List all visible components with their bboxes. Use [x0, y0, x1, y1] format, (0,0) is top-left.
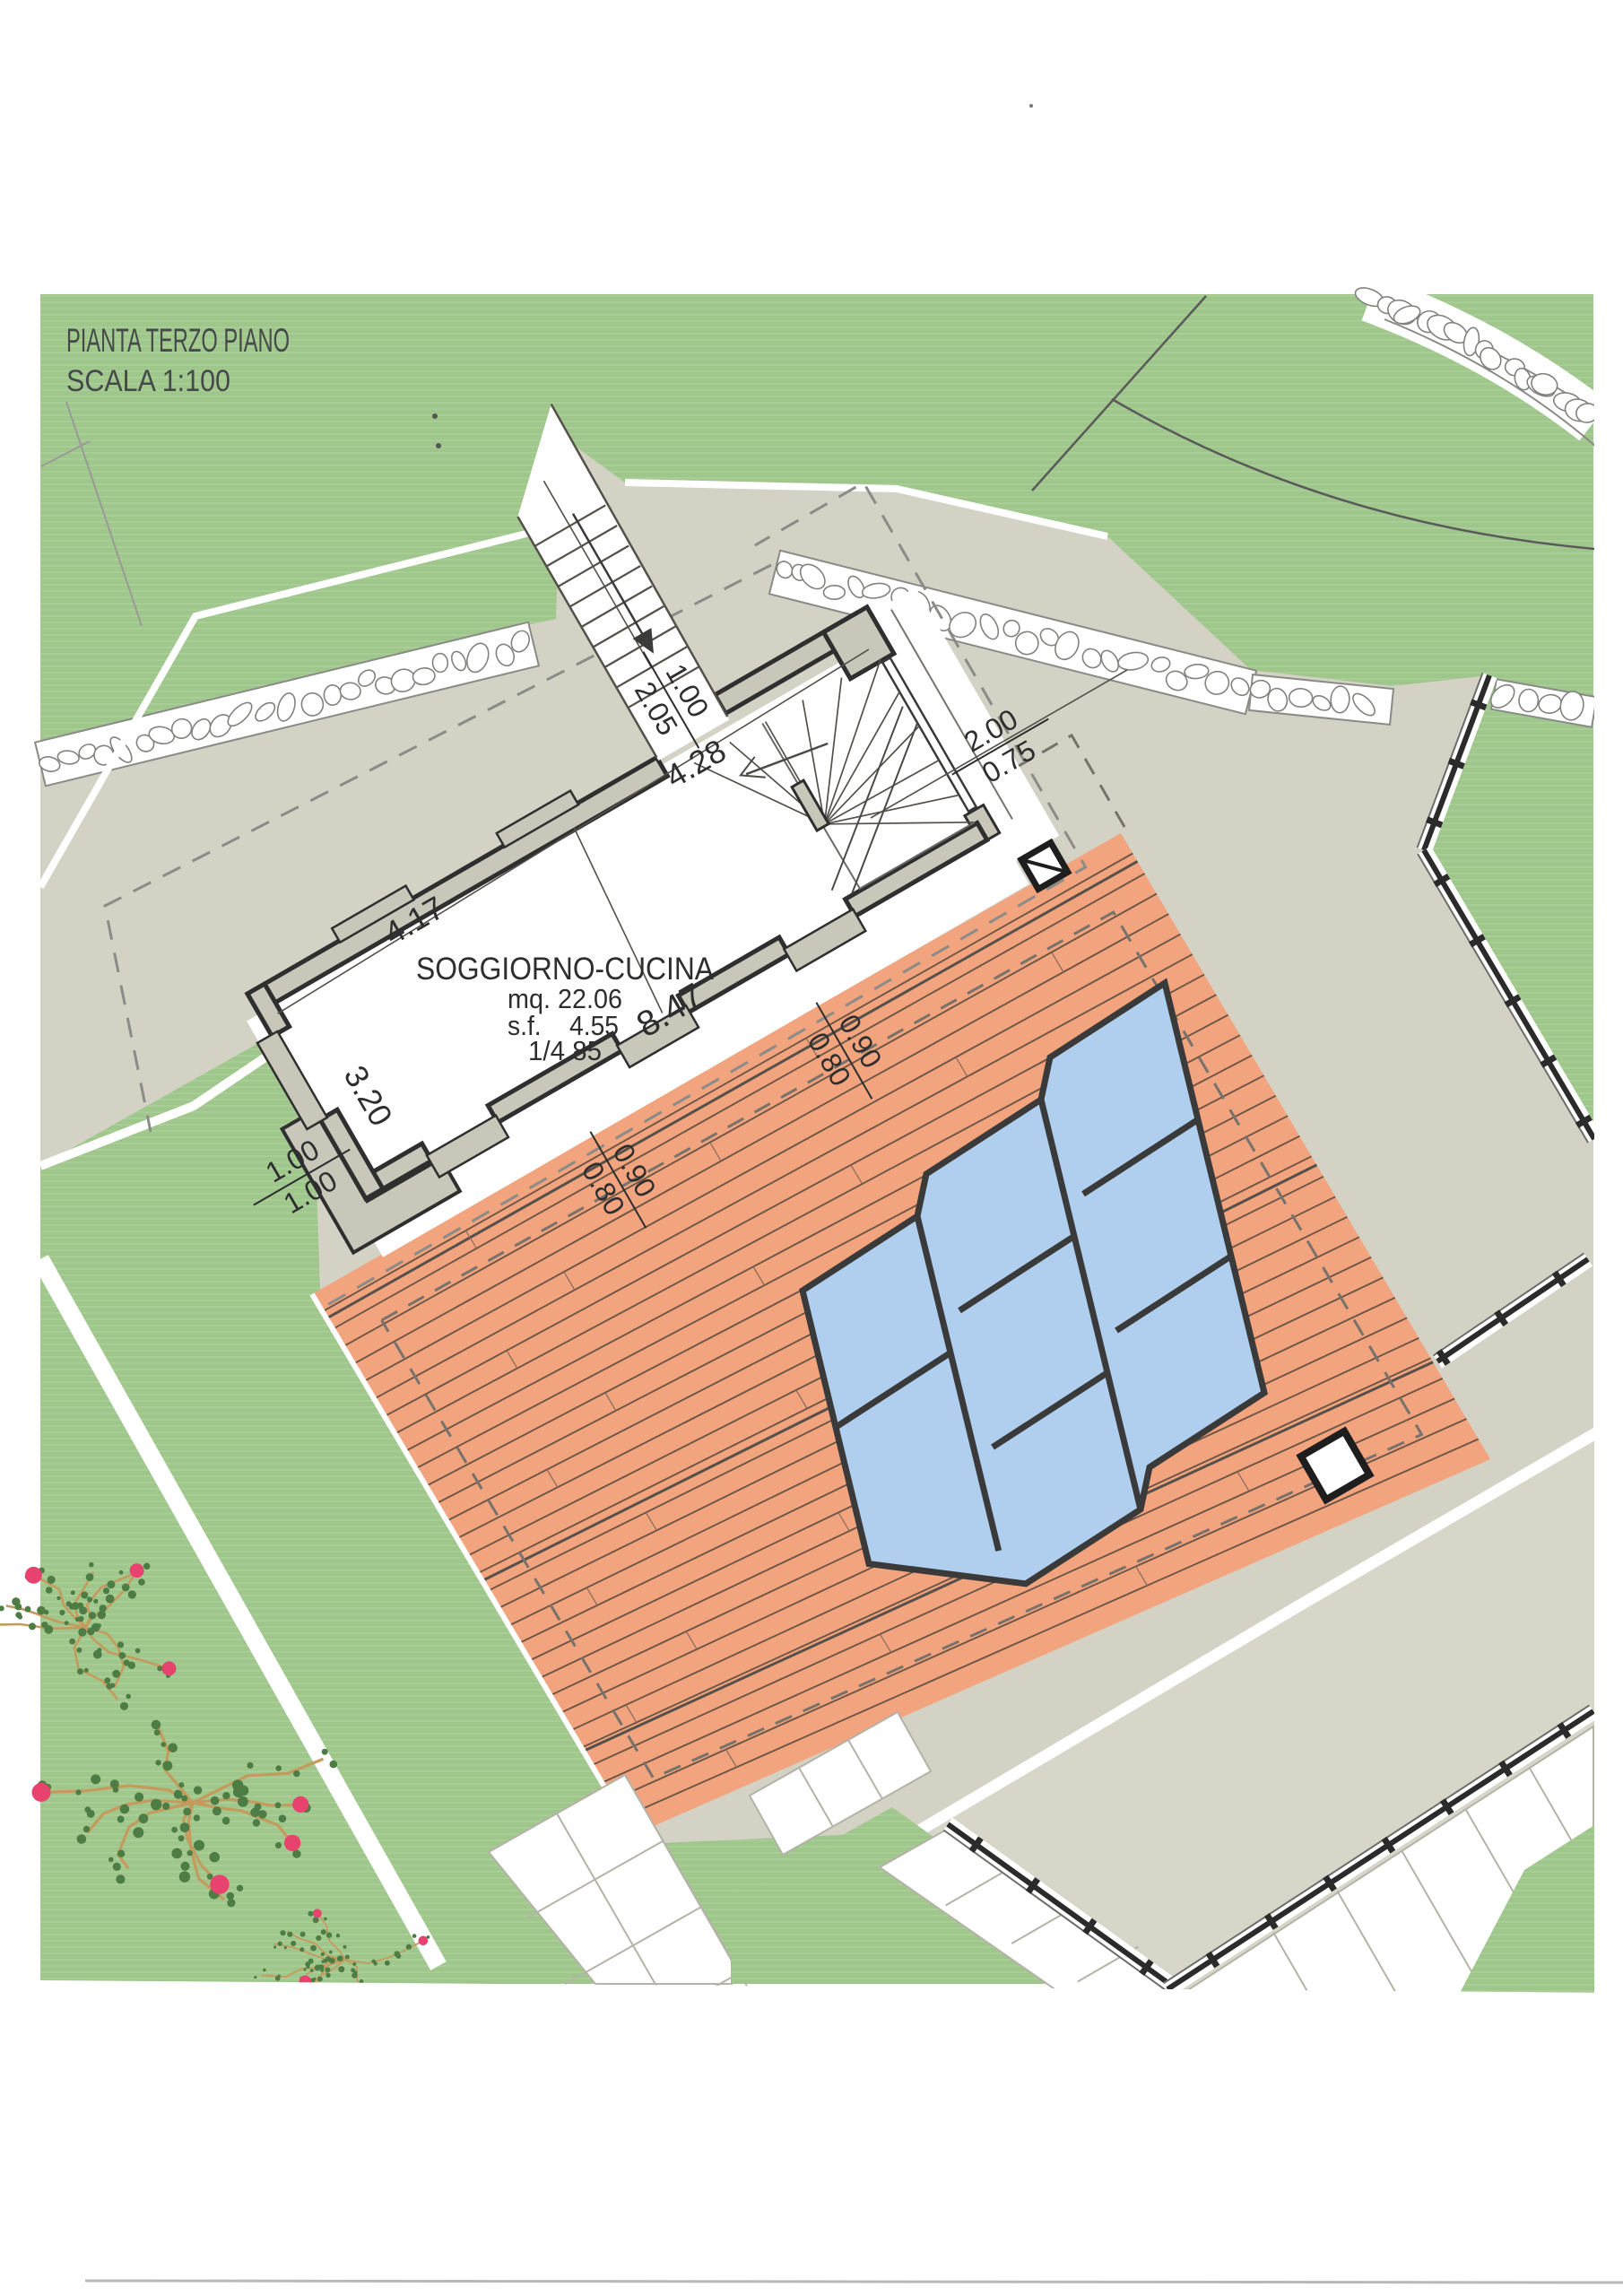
svg-text:1/4.85: 1/4.85	[528, 1035, 602, 1066]
svg-text:SCALA 1:100: SCALA 1:100	[66, 364, 230, 398]
svg-text:PIANTA TERZO PIANO: PIANTA TERZO PIANO	[66, 322, 290, 359]
svg-text:SOGGIORNO-CUCINA: SOGGIORNO-CUCINA	[416, 952, 715, 987]
